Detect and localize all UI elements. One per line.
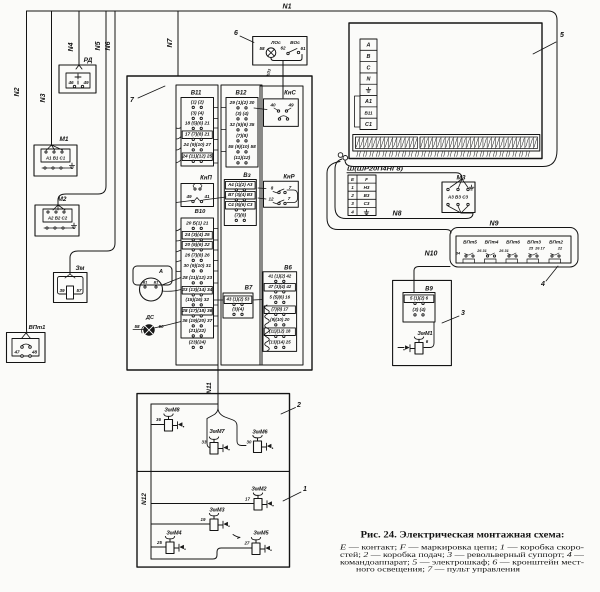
svg-text:33 (13)(14) 34: 33 (13)(14) 34 <box>182 287 212 293</box>
svg-text:(23)(24): (23)(24) <box>189 340 206 346</box>
svg-text:ВПт6: ВПт6 <box>506 240 520 246</box>
svg-text:N6: N6 <box>105 41 112 50</box>
svg-text:(7)(8) 17: (7)(8) 17 <box>271 307 288 312</box>
svg-text:2: 2 <box>350 193 354 198</box>
svg-text:РД: РД <box>84 57 93 64</box>
svg-text:N2: N2 <box>14 87 21 96</box>
svg-text:Зм: Зм <box>76 265 85 272</box>
svg-text:N4: N4 <box>68 42 75 51</box>
svg-text:(7)(8): (7)(8) <box>234 213 246 219</box>
svg-text:26 (7)(8) 26: 26 (7)(8) 26 <box>184 253 210 259</box>
svg-text:22: 22 <box>557 247 563 251</box>
svg-text:N12: N12 <box>141 493 148 505</box>
svg-text:49: 49 <box>185 194 192 199</box>
svg-text:28 (17)(18) 36: 28 (17)(18) 36 <box>181 308 212 314</box>
svg-text:28 (11)(12) 23: 28 (11)(12) 23 <box>181 275 212 281</box>
svg-text:N10: N10 <box>425 251 438 258</box>
svg-text:А: А <box>158 269 163 275</box>
svg-text:(21)(22): (21)(22) <box>189 328 206 334</box>
svg-text:48: 48 <box>31 350 38 355</box>
svg-text:33: 33 <box>202 440 207 445</box>
svg-text:6: 6 <box>234 30 238 37</box>
svg-text:N11: N11 <box>206 382 213 394</box>
svg-text:A1: A1 <box>364 99 372 105</box>
svg-text:(9)(10) 20: (9)(10) 20 <box>270 317 290 322</box>
svg-text:26 31: 26 31 <box>498 249 509 253</box>
svg-text:17: 17 <box>245 497 250 502</box>
svg-text:3: 3 <box>351 201 354 206</box>
svg-text:27: 27 <box>244 541 250 546</box>
svg-text:N1: N1 <box>283 4 292 11</box>
svg-text:Н3: Н3 <box>364 185 370 190</box>
svg-text:N: N <box>367 77 371 83</box>
svg-text:С1: С1 <box>365 122 372 128</box>
svg-text:(15)(16) 32: (15)(16) 32 <box>186 297 210 303</box>
svg-text:С4 (5)(6) С3: С4 (5)(6) С3 <box>228 202 253 207</box>
svg-text:41 (1)(2) 42: 41 (1)(2) 42 <box>267 274 291 279</box>
svg-text:ЗмМ2: ЗмМ2 <box>251 487 266 493</box>
svg-text:(3) (4): (3) (4) <box>413 307 426 313</box>
svg-text:24 (9)(10) 27: 24 (9)(10) 27 <box>183 142 212 148</box>
svg-text:N5: N5 <box>95 41 102 50</box>
svg-text:(11)(12) 18: (11)(12) 18 <box>269 329 291 334</box>
svg-text:47 (3)(4) 42: 47 (3)(4) 42 <box>267 284 291 289</box>
svg-text:46: 46 <box>67 80 74 85</box>
svg-text:36: 36 <box>156 417 161 422</box>
svg-text:26 17: 26 17 <box>534 247 545 251</box>
svg-text:А2 В2 С2: А2 В2 С2 <box>47 216 68 221</box>
svg-text:(1) (2): (1) (2) <box>191 100 204 106</box>
svg-text:36 (19)(20) 37: 36 (19)(20) 37 <box>182 318 212 324</box>
svg-text:В7 (3)(4) В3: В7 (3)(4) В3 <box>228 192 253 197</box>
svg-text:7: 7 <box>288 196 291 201</box>
svg-text:КнП: КнП <box>200 176 212 182</box>
svg-text:26 31: 26 31 <box>476 249 487 253</box>
svg-text:ЗмМ7: ЗмМ7 <box>209 429 225 435</box>
svg-text:ного освещения; 7 — пульт упр: ного освещения; 7 — пульт управления <box>356 565 521 574</box>
svg-text:(3)(4): (3)(4) <box>232 307 244 313</box>
svg-text:N9: N9 <box>490 221 499 228</box>
svg-text:25: 25 <box>156 540 162 545</box>
svg-text:(3) (4): (3) (4) <box>191 111 204 117</box>
svg-text:55 (9)(10) 58: 55 (9)(10) 58 <box>228 144 256 150</box>
svg-text:1: 1 <box>303 486 307 493</box>
svg-text:39: 39 <box>59 288 65 293</box>
svg-text:F: F <box>365 177 368 182</box>
svg-text:А3 В3 С3: А3 В3 С3 <box>447 195 469 200</box>
svg-text:43 (1)(2) 53: 43 (1)(2) 53 <box>226 297 250 302</box>
svg-text:47: 47 <box>13 350 20 355</box>
svg-text:В3: В3 <box>364 193 370 198</box>
svg-text:КнС: КнС <box>284 91 296 97</box>
svg-text:2: 2 <box>296 402 301 409</box>
svg-text:41: 41 <box>203 194 210 199</box>
svg-text:24 (3)(4) 25: 24 (3)(4) 25 <box>184 232 210 238</box>
svg-text:В10: В10 <box>195 209 206 215</box>
svg-text:А1 В1 С1: А1 В1 С1 <box>45 156 66 161</box>
svg-text:В11: В11 <box>191 91 202 97</box>
svg-text:ДС: ДС <box>145 315 155 321</box>
svg-text:58: 58 <box>134 324 140 329</box>
svg-text:В12: В12 <box>235 91 247 97</box>
svg-text:12: 12 <box>268 197 274 202</box>
svg-text:(13)(14) 25: (13)(14) 25 <box>269 340 291 345</box>
svg-text:25: 25 <box>528 247 534 251</box>
svg-text:7: 7 <box>289 185 292 190</box>
svg-text:30 (9)(10) 31: 30 (9)(10) 31 <box>184 263 212 269</box>
svg-text:В9: В9 <box>425 287 433 293</box>
svg-text:B: B <box>367 54 371 60</box>
svg-text:40: 40 <box>269 103 276 108</box>
svg-text:ЗмМ4: ЗмМ4 <box>166 531 181 537</box>
svg-text:8: 8 <box>271 186 274 191</box>
svg-text:5 (5)(6) 16: 5 (5)(6) 16 <box>270 295 291 300</box>
svg-text:18 (5)(6) 21: 18 (5)(6) 21 <box>185 121 210 127</box>
svg-text:ВПт3: ВПт3 <box>527 240 541 246</box>
svg-text:В1: В1 <box>154 281 159 285</box>
svg-text:17 (7)(8) 21: 17 (7)(8) 21 <box>185 132 210 138</box>
svg-text:32 (5)(6) 35: 32 (5)(6) 35 <box>230 122 255 128</box>
svg-text:ВПт5: ВПт5 <box>463 240 477 246</box>
svg-text:В7: В7 <box>245 286 253 292</box>
svg-text:19: 19 <box>201 517 206 522</box>
svg-text:5 (1)(2) 6: 5 (1)(2) 6 <box>410 296 429 301</box>
svg-text:49: 49 <box>287 103 294 108</box>
svg-text:ВПт4: ВПт4 <box>485 240 499 246</box>
svg-text:5: 5 <box>560 32 564 39</box>
svg-text:20 (5)(6) 22: 20 (5)(6) 22 <box>184 242 210 248</box>
svg-text:49: 49 <box>82 80 89 85</box>
svg-text:20 Б(1) 21: 20 Б(1) 21 <box>185 221 209 227</box>
svg-text:Ш(ШР20П4НГ8): Ш(ШР20П4НГ8) <box>347 167 403 173</box>
svg-text:61: 61 <box>300 46 306 51</box>
svg-text:ЗмМ8: ЗмМ8 <box>164 408 180 414</box>
svg-text:A: A <box>366 43 371 49</box>
svg-text:29 (1)(2) 30: 29 (1)(2) 30 <box>229 100 255 106</box>
svg-text:В1: В1 <box>143 281 148 285</box>
svg-text:С3: С3 <box>364 201 370 206</box>
svg-text:ЗмМ3: ЗмМ3 <box>209 508 224 514</box>
svg-text:62: 62 <box>280 46 286 51</box>
svg-text:24 (11)(12) 25: 24 (11)(12) 25 <box>181 154 212 160</box>
svg-text:30: 30 <box>247 440 252 445</box>
svg-text:1: 1 <box>351 185 354 190</box>
svg-text:57: 57 <box>76 288 82 293</box>
svg-text:А4 (1)(2) А3: А4 (1)(2) А3 <box>227 182 253 187</box>
svg-text:N3: N3 <box>40 93 47 102</box>
svg-text:3: 3 <box>461 310 465 317</box>
svg-text:(11)(12): (11)(12) <box>234 155 251 161</box>
svg-text:58: 58 <box>259 46 265 51</box>
svg-text:В6: В6 <box>284 266 292 272</box>
svg-text:4: 4 <box>540 281 545 288</box>
svg-text:N8: N8 <box>393 211 402 218</box>
svg-text:М1: М1 <box>59 136 68 143</box>
svg-text:4: 4 <box>350 209 354 214</box>
svg-text:ЗмМ6: ЗмМ6 <box>252 430 268 436</box>
svg-text:N7: N7 <box>167 37 174 47</box>
svg-text:ВПт2: ВПт2 <box>549 240 563 246</box>
svg-text:ВОс: ВОс <box>290 40 300 46</box>
svg-text:В11: В11 <box>364 111 373 116</box>
svg-text:ЗмМ5: ЗмМ5 <box>253 531 269 537</box>
svg-text:ВПт1: ВПт1 <box>29 325 46 331</box>
svg-text:Рис. 24. Электрическая монтажн: Рис. 24. Электрическая монтажная схема: <box>361 530 565 540</box>
svg-text:КнР: КнР <box>283 175 295 181</box>
svg-text:C: C <box>367 65 371 71</box>
svg-text:ЗмМ1: ЗмМ1 <box>417 331 432 337</box>
svg-text:(7)(8): (7)(8) <box>236 133 248 139</box>
svg-text:М2: М2 <box>57 196 66 203</box>
svg-text:(3) (4): (3) (4) <box>236 111 249 117</box>
svg-text:Вз: Вз <box>243 173 250 179</box>
